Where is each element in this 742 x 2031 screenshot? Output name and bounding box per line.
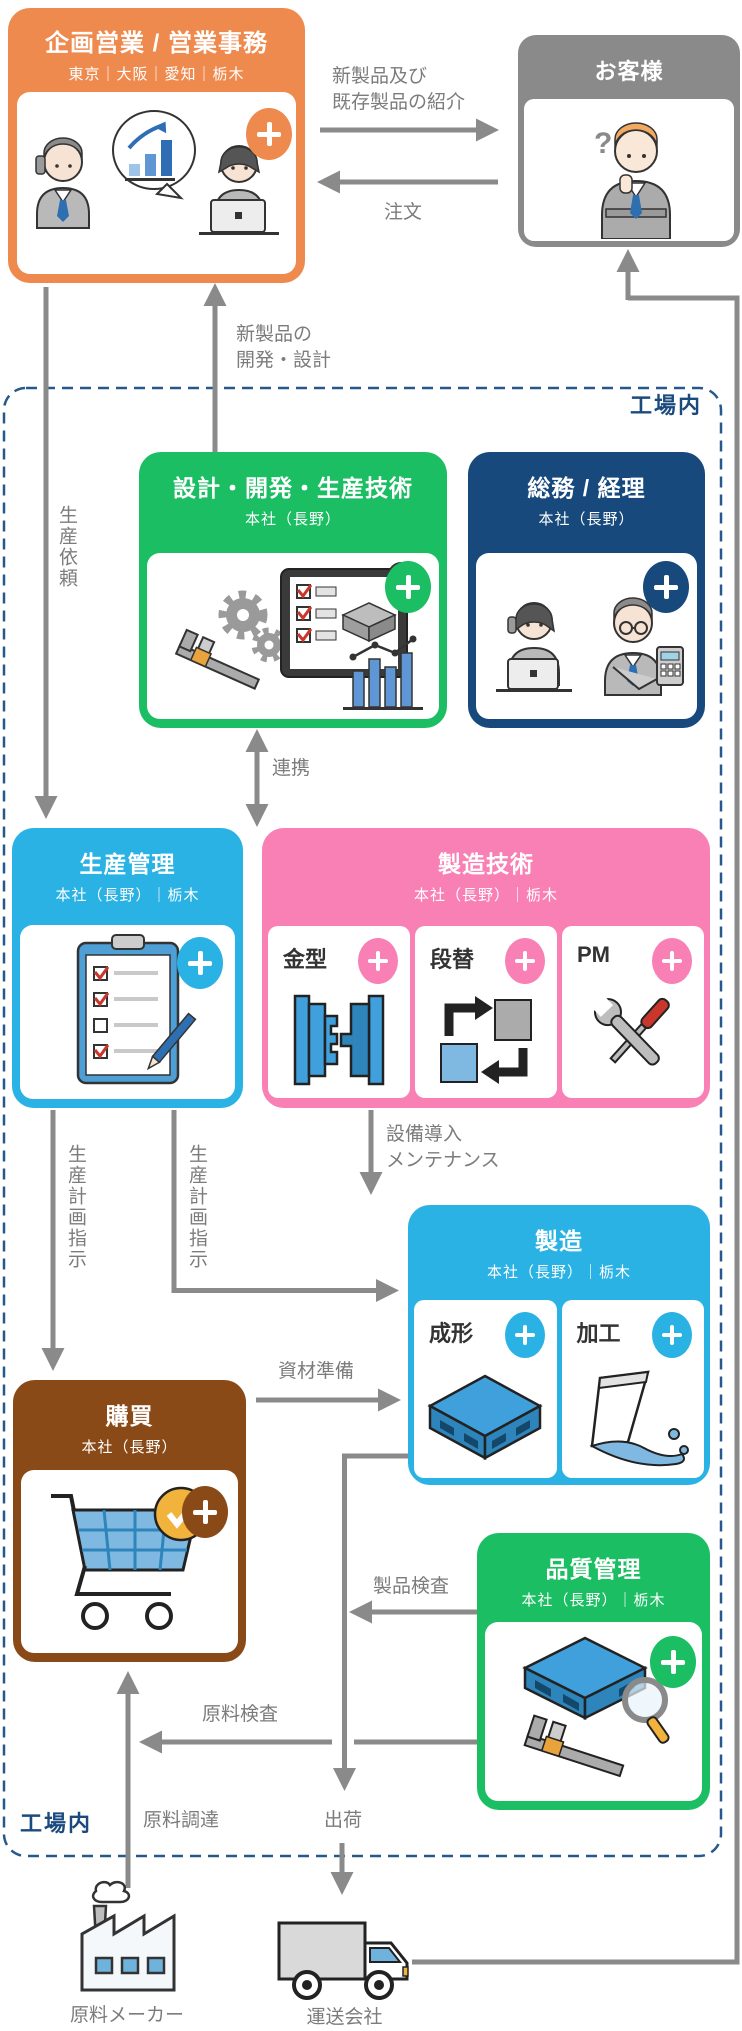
node-quality[interactable]: 品質管理 本社（長野）｜栃木 [477, 1533, 710, 1810]
node-locations: 本社（長野） [13, 1436, 246, 1457]
flow-label-production-plan-2: 生産計画指示 [183, 1144, 209, 1270]
node-title: お客様 [518, 54, 740, 86]
node-production-mgmt[interactable]: 生産管理 本社（長野）｜栃木 [12, 828, 243, 1108]
subunit-molding[interactable]: 成形 [414, 1300, 557, 1478]
node-design-dev[interactable]: 設計・開発・生産技術 本社（長野） [139, 452, 447, 728]
tools-icon [577, 986, 689, 1090]
plus-icon[interactable] [246, 108, 292, 160]
node-title: 品質管理 [477, 1550, 710, 1584]
subunit-label: 加工 [577, 1316, 621, 1348]
plus-icon[interactable] [652, 1312, 692, 1358]
plus-icon[interactable] [182, 1486, 228, 1538]
flow-label-new-product-dev: 新製品の 開発・設計 [236, 322, 331, 374]
node-panel [147, 553, 439, 719]
node-title: 生産管理 [12, 845, 243, 879]
node-panel [485, 1622, 702, 1801]
flow-label-equipment: 設備導入 メンテナンス [386, 1122, 500, 1174]
org-flow-diagram: 企画営業 / 営業事務 東京｜大阪｜愛知｜栃木 [0, 0, 742, 2031]
plus-icon[interactable] [385, 561, 431, 613]
node-locations: 本社（長野） [468, 508, 705, 529]
node-locations: 本社（長野）｜栃木 [477, 1589, 710, 1610]
node-title: 購買 [13, 1397, 246, 1431]
shipping-company [275, 1915, 415, 2005]
node-panel [476, 553, 697, 719]
flow-label-procurement: 原料調達 [143, 1808, 219, 1834]
node-locations: 本社（長野） [139, 508, 447, 529]
subunit-label: 成形 [429, 1316, 473, 1348]
subunit-label: 段替 [430, 942, 474, 974]
node-title: 企画営業 / 営業事務 [8, 23, 305, 58]
flow-label-intro: 新製品及び 既存製品の紹介 [332, 64, 465, 116]
subunit-processing[interactable]: 加工 [562, 1300, 705, 1478]
subunit-label: 金型 [283, 942, 327, 974]
node-purchasing[interactable]: 購買 本社（長野） [13, 1380, 246, 1662]
node-title: 設計・開発・生産技術 [139, 469, 447, 503]
subunit-changeover[interactable]: 段替 [415, 926, 557, 1098]
node-locations: 本社（長野）｜栃木 [408, 1261, 710, 1282]
shipping-company-label: 運送会社 [287, 2002, 402, 2029]
plus-icon[interactable] [505, 938, 545, 984]
pallet-icon [422, 1368, 548, 1470]
plus-icon[interactable] [358, 938, 398, 984]
flow-label-raw-inspection: 原料検査 [202, 1702, 278, 1728]
factory-zone-label-top: 工場内 [630, 388, 702, 420]
plus-icon[interactable] [643, 561, 689, 613]
raw-material-maker [72, 1868, 184, 1998]
node-general-affairs[interactable]: 総務 / 経理 本社（長野） [468, 452, 705, 728]
node-panel: ? [524, 99, 734, 241]
flow-label-production-plan-1: 生産計画指示 [62, 1144, 88, 1270]
node-title: 製造 [408, 1222, 710, 1256]
changeover-icon [431, 986, 541, 1090]
node-title: 総務 / 経理 [468, 469, 705, 503]
node-manufacturing[interactable]: 製造 本社（長野）｜栃木 成形 加工 [408, 1205, 710, 1485]
plus-icon[interactable] [652, 938, 692, 984]
plus-icon[interactable] [177, 937, 223, 989]
node-title: 製造技術 [262, 845, 710, 879]
question-mark-icon: ? [594, 127, 612, 160]
flow-label-material-prep: 資材準備 [278, 1359, 354, 1385]
mold-icon [287, 990, 391, 1090]
node-mfg-tech[interactable]: 製造技術 本社（長野）｜栃木 金型 段替 [262, 828, 710, 1108]
subunit-pm[interactable]: PM [562, 926, 704, 1098]
customer-illustration: ? [524, 99, 734, 239]
plus-icon[interactable] [505, 1312, 545, 1358]
node-customer[interactable]: お客様 ? [518, 35, 740, 247]
node-panel [20, 925, 235, 1099]
raw-material-maker-label: 原料メーカー [52, 2000, 202, 2027]
node-planning-sales[interactable]: 企画営業 / 営業事務 東京｜大阪｜愛知｜栃木 [8, 8, 305, 283]
flow-label-cooperation: 連携 [272, 756, 310, 782]
flow-label-shipping: 出荷 [324, 1808, 362, 1834]
subunit-label: PM [577, 942, 610, 968]
gear-icon [223, 595, 283, 659]
subunit-mold[interactable]: 金型 [268, 926, 410, 1098]
node-locations: 本社（長野）｜栃木 [262, 884, 710, 905]
plus-icon[interactable] [650, 1636, 696, 1688]
factory-icon [72, 1868, 184, 1998]
node-locations: 本社（長野）｜栃木 [12, 884, 243, 905]
node-panel [17, 92, 296, 274]
node-panel [21, 1470, 238, 1653]
flow-label-product-inspection: 製品検査 [373, 1574, 449, 1600]
truck-icon [275, 1915, 415, 2005]
flow-label-production-request: 生産依頼 [53, 505, 79, 589]
node-locations: 東京｜大阪｜愛知｜栃木 [8, 63, 305, 84]
flow-label-order: 注文 [384, 200, 422, 226]
processing-icon [570, 1368, 696, 1470]
factory-zone-label-bottom: 工場内 [20, 1806, 92, 1838]
